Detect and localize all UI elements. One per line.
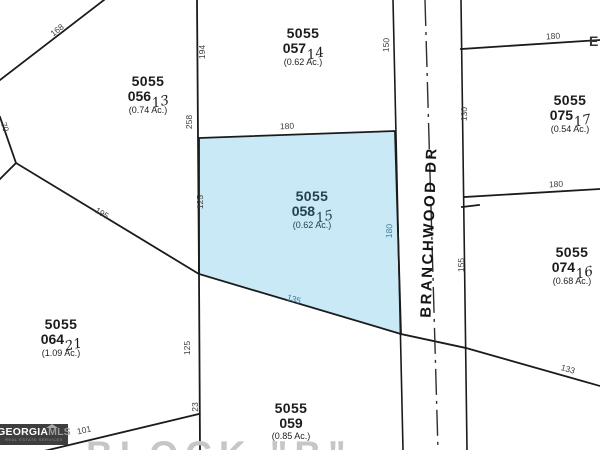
- dimension-label: 180: [384, 224, 394, 239]
- block-number: 5055: [88, 74, 208, 89]
- georgia-mls-logo: GEORGIAMLS REAL ESTATE SERVICES: [0, 424, 68, 445]
- acreage-label: (0.62 Ac.): [252, 220, 372, 230]
- block-number: 5055: [243, 26, 363, 41]
- lot-line-topleft-diagonal: [0, 0, 104, 80]
- lot-number: 056: [128, 88, 151, 104]
- block-number: 5055: [231, 401, 351, 416]
- dimension-label: 194: [197, 45, 207, 59]
- parcel-label-057: 5055 05714 (0.62 Ac.): [243, 26, 363, 67]
- lot-number: 057: [283, 40, 306, 56]
- map-edge-label: E: [589, 33, 598, 49]
- lot-number: 064: [41, 331, 64, 347]
- dimension-label: 180: [546, 31, 561, 42]
- block-number: 5055: [252, 189, 372, 204]
- dimension-label: 130: [459, 107, 469, 121]
- parcel-label-064: 5055 06421 (1.09 Ac.): [1, 317, 121, 358]
- dimension-label: 155: [456, 258, 466, 272]
- block-watermark: BLOCK "B": [86, 434, 353, 450]
- road-edge-right: [461, 0, 467, 450]
- lot-line-133: [466, 348, 600, 386]
- dimension-label: 180: [549, 179, 564, 190]
- dimension-label: 23: [190, 402, 200, 411]
- acreage-label: (1.09 Ac.): [1, 348, 121, 358]
- lot-number: 058: [292, 203, 315, 219]
- block-number: 5055: [512, 245, 600, 260]
- dimension-label: 150: [381, 38, 391, 53]
- acreage-label: (0.62 Ac.): [243, 57, 363, 67]
- lot-number: 074: [552, 259, 575, 275]
- block-number: 5055: [1, 317, 121, 332]
- dimension-label: 125: [182, 341, 192, 355]
- parcel-label-056: 5055 05613 (0.74 Ac.): [88, 74, 208, 115]
- parcel-label-074: 5055 07416 (0.68 Ac.): [512, 245, 600, 286]
- lot-line-topright: [461, 40, 600, 49]
- dimension-label: 258: [184, 115, 194, 129]
- dimension-label: 125: [195, 195, 205, 209]
- lot-number: 059: [279, 415, 302, 431]
- dimension-label: 180: [280, 121, 295, 131]
- roof-icon: [46, 424, 58, 428]
- parcel-label-058: 5055 05815 (0.62 Ac.): [252, 189, 372, 230]
- acreage-label: (0.74 Ac.): [88, 105, 208, 115]
- plat-map: BRANCHWOOD DR 5055 05613 (0.74 Ac.) 5055…: [0, 0, 600, 450]
- parcel-label-075: 5055 07517 (0.54 Ac.): [510, 93, 600, 134]
- lot-line-195: [16, 163, 199, 274]
- block-number: 5055: [510, 93, 600, 108]
- logo-tagline: REAL ESTATE SERVICES: [5, 437, 63, 442]
- lot-line-075-074: [464, 189, 600, 197]
- lot-line-road-crossing: [401, 334, 466, 348]
- lot-number: 075: [550, 107, 573, 123]
